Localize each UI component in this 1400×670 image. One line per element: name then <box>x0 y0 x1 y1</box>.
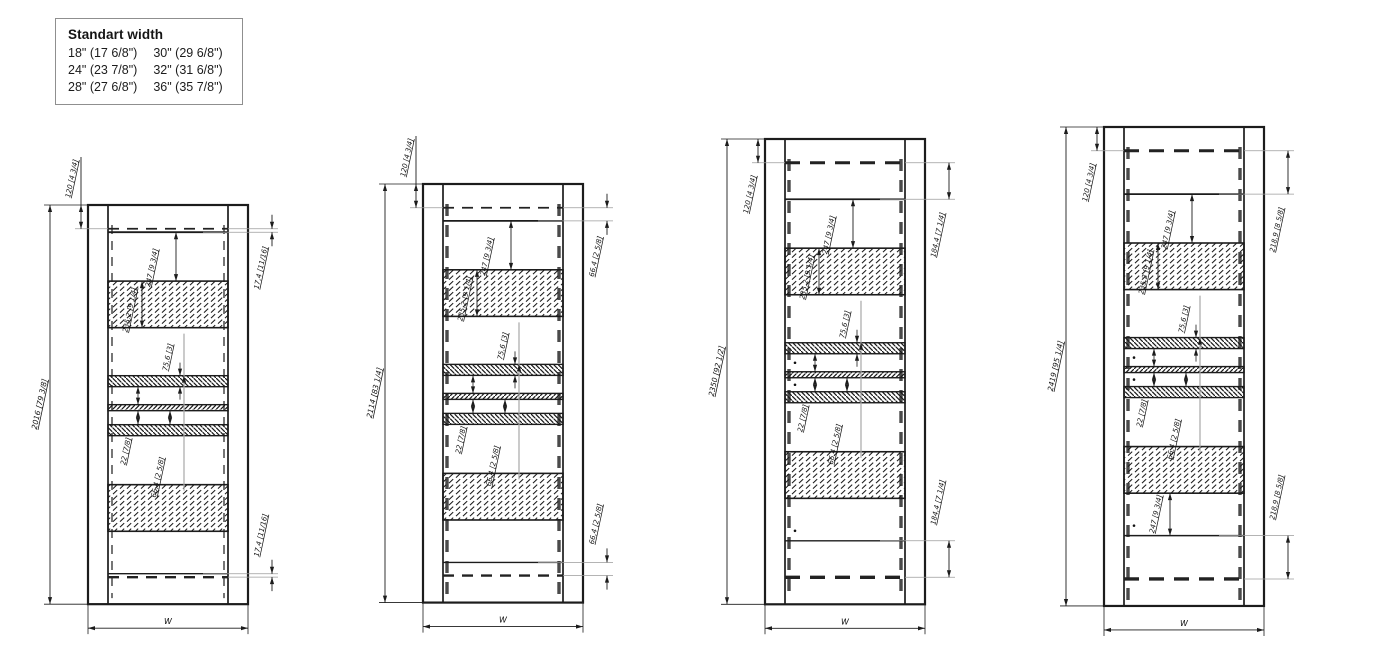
arrowhead <box>1152 349 1156 356</box>
lower-hatch-block <box>1124 447 1244 494</box>
top-inset-dim: 120 [4 3/4] <box>1081 162 1097 202</box>
arrowhead <box>174 274 178 281</box>
arrowhead <box>471 399 475 406</box>
rail-gap-dim: 22 [7/8] <box>454 425 468 454</box>
reference-dot <box>1133 524 1136 527</box>
reference-dot <box>794 529 797 532</box>
arrowhead <box>851 241 855 248</box>
arrowhead <box>1184 373 1188 380</box>
arrowhead <box>471 386 475 393</box>
width-dim: W <box>1180 619 1189 628</box>
thin-hatch-band <box>785 392 905 403</box>
arrowhead <box>1286 572 1290 579</box>
mid-span-dim: 75,6 [3] <box>1177 305 1191 334</box>
arrowhead <box>1168 493 1172 500</box>
arrowhead <box>813 354 817 361</box>
thin-hatch-band <box>108 405 228 411</box>
arrowhead <box>178 369 182 376</box>
arrowhead <box>383 596 387 603</box>
width-option: 24" (23 7/8") <box>68 63 137 77</box>
edge-bottom-dim: 66,4 [2 5/8] <box>588 503 604 545</box>
arrowhead <box>513 357 517 364</box>
top-inset-dim: 120 [4 3/4] <box>742 174 758 214</box>
arrowhead <box>1286 151 1290 158</box>
width-dim: W <box>499 616 508 625</box>
overall-height-dim: 2114 [83 1/4] <box>365 367 384 419</box>
panel-height-2419: 2419 [95 1/4]120 [4 3/4]218,9 [8 5/8]218… <box>1046 127 1294 636</box>
arrowhead <box>88 626 95 630</box>
arrowhead <box>136 418 140 425</box>
arrowhead <box>725 139 729 146</box>
arrowhead <box>855 354 859 361</box>
arrowhead <box>48 205 52 212</box>
arrowhead <box>813 365 817 372</box>
width-option: 28" (27 6/8") <box>68 80 137 94</box>
width-option: 36" (35 7/8") <box>153 80 222 94</box>
arrowhead <box>383 184 387 191</box>
arrowhead <box>765 626 772 630</box>
arrowhead <box>79 205 83 212</box>
panel-height-2114: 2114 [83 1/4]120 [4 3/4]66,4 [2 5/8]66,4… <box>365 136 613 633</box>
arrowhead <box>168 411 172 418</box>
edge-top-dim: 66,4 [2 5/8] <box>588 235 604 277</box>
legend-title: Standart width <box>68 27 228 42</box>
arrowhead <box>1152 360 1156 367</box>
panel-height-2350: 2350 [92 1/2]120 [4 3/4]184,4 [7 1/4]184… <box>707 139 955 634</box>
edge-top-dim: 184,4 [7 1/4] <box>929 211 946 258</box>
arrowhead <box>756 156 760 163</box>
width-option: 18" (17 6/8") <box>68 46 137 60</box>
arrowhead <box>947 541 951 548</box>
arrowhead <box>605 221 609 228</box>
thin-hatch-band <box>443 364 563 375</box>
arrowhead <box>1286 187 1290 194</box>
arrowhead <box>423 624 430 628</box>
arrowhead <box>270 232 274 239</box>
arrowhead <box>756 139 760 146</box>
thin-hatch-band <box>1124 338 1244 349</box>
arrowhead <box>1095 127 1099 134</box>
overall-height-dim: 2419 [95 1/4] <box>1046 340 1065 392</box>
reference-dot <box>1133 378 1136 381</box>
arrowhead <box>1190 194 1194 201</box>
standard-width-legend: Standart width 18" (17 6/8") 24" (23 7/8… <box>55 18 243 105</box>
top-inset-dim: 120 [4 3/4] <box>399 137 415 177</box>
arrowhead <box>1152 373 1156 380</box>
arrowhead <box>178 387 182 394</box>
arrowhead <box>1286 536 1290 543</box>
thin-hatch-band <box>443 413 563 424</box>
arrowhead <box>136 398 140 405</box>
arrowhead <box>136 387 140 394</box>
overall-height-dim: 2016 [79 3/8] <box>30 378 49 430</box>
arrowhead <box>79 222 83 229</box>
arrowhead <box>918 626 925 630</box>
thin-hatch-band <box>108 376 228 387</box>
arrowhead <box>503 399 507 406</box>
arrowhead <box>947 570 951 577</box>
bottom-block-offset-dim: 247 [9 3/4] <box>1148 494 1164 534</box>
arrowhead <box>1257 628 1264 632</box>
thin-hatch-band <box>443 393 563 399</box>
panel-height-2016: 2016 [79 3/8]120 [4 3/4]17,4 [11/16]17,4… <box>30 157 278 634</box>
arrowhead <box>1190 236 1194 243</box>
top-inset-dim: 120 [4 3/4] <box>64 158 80 198</box>
arrowhead <box>270 577 274 584</box>
arrowhead <box>605 576 609 583</box>
arrowhead <box>1194 349 1198 356</box>
arrowhead <box>1168 529 1172 536</box>
mid-span-dim: 75,6 [3] <box>496 331 510 360</box>
arrowhead <box>1064 127 1068 134</box>
arrowhead <box>509 263 513 270</box>
arrowhead <box>136 411 140 418</box>
edge-top-dim: 17,4 [11/16] <box>253 245 270 289</box>
reference-dot <box>794 361 797 364</box>
arrowhead <box>813 385 817 392</box>
width-option: 32" (31 6/8") <box>153 63 222 77</box>
lower-hatch-block <box>443 473 563 520</box>
legend-columns: 18" (17 6/8") 24" (23 7/8") 28" (27 6/8"… <box>68 46 228 94</box>
arrowhead <box>270 567 274 574</box>
arrowhead <box>503 406 507 413</box>
width-dim: W <box>841 617 850 626</box>
rail-gap-dim: 22 [7/8] <box>119 437 133 466</box>
edge-bottom-dim: 17,4 [11/16] <box>253 513 270 557</box>
arrowhead <box>947 192 951 199</box>
arrowhead <box>414 184 418 191</box>
arrowhead <box>1184 380 1188 387</box>
arrowhead <box>1194 331 1198 338</box>
arrowhead <box>947 163 951 170</box>
arrowhead <box>471 375 475 382</box>
arrowhead <box>845 385 849 392</box>
edge-bottom-dim: 218,9 [8 5/8] <box>1268 474 1285 521</box>
arrowhead <box>414 201 418 208</box>
width-option: 30" (29 6/8") <box>153 46 222 60</box>
arrowhead <box>605 201 609 208</box>
arrowhead <box>509 221 513 228</box>
width-dim: W <box>164 617 173 626</box>
arrowhead <box>1104 628 1111 632</box>
thin-hatch-band <box>785 372 905 378</box>
arrowhead <box>471 406 475 413</box>
thin-hatch-band <box>785 343 905 354</box>
arrowhead <box>813 378 817 385</box>
overall-height-dim: 2350 [92 1/2] <box>707 345 726 397</box>
mid-span-dim: 75,6 [3] <box>838 310 852 339</box>
arrowhead <box>1152 380 1156 387</box>
arrowhead <box>270 222 274 229</box>
arrowhead <box>845 378 849 385</box>
arrowhead <box>174 232 178 239</box>
thin-hatch-band <box>108 425 228 436</box>
arrowhead <box>1064 599 1068 606</box>
arrowhead <box>1095 144 1099 151</box>
arrowhead <box>48 597 52 604</box>
technical-drawing-sheet: 2016 [79 3/8]120 [4 3/4]17,4 [11/16]17,4… <box>0 0 1400 670</box>
arrowhead <box>168 418 172 425</box>
arrowhead <box>851 199 855 206</box>
edge-bottom-dim: 184,4 [7 1/4] <box>929 479 946 526</box>
arrowhead <box>725 597 729 604</box>
rail-gap-dim: 22 [7/8] <box>1135 398 1149 427</box>
lower-hatch-block <box>785 452 905 499</box>
thin-hatch-band <box>1124 367 1244 373</box>
mid-span-dim: 75,6 [3] <box>161 343 175 372</box>
arrowhead <box>605 555 609 562</box>
reference-dot <box>794 383 797 386</box>
arrowhead <box>576 624 583 628</box>
thin-hatch-band <box>1124 387 1244 398</box>
edge-top-dim: 218,9 [8 5/8] <box>1268 206 1285 253</box>
rail-gap-dim: 22 [7/8] <box>796 404 810 433</box>
lower-hatch-block <box>108 485 228 532</box>
arrowhead <box>855 336 859 343</box>
arrowhead <box>241 626 248 630</box>
arrowhead <box>513 375 517 382</box>
reference-dot <box>1133 356 1136 359</box>
